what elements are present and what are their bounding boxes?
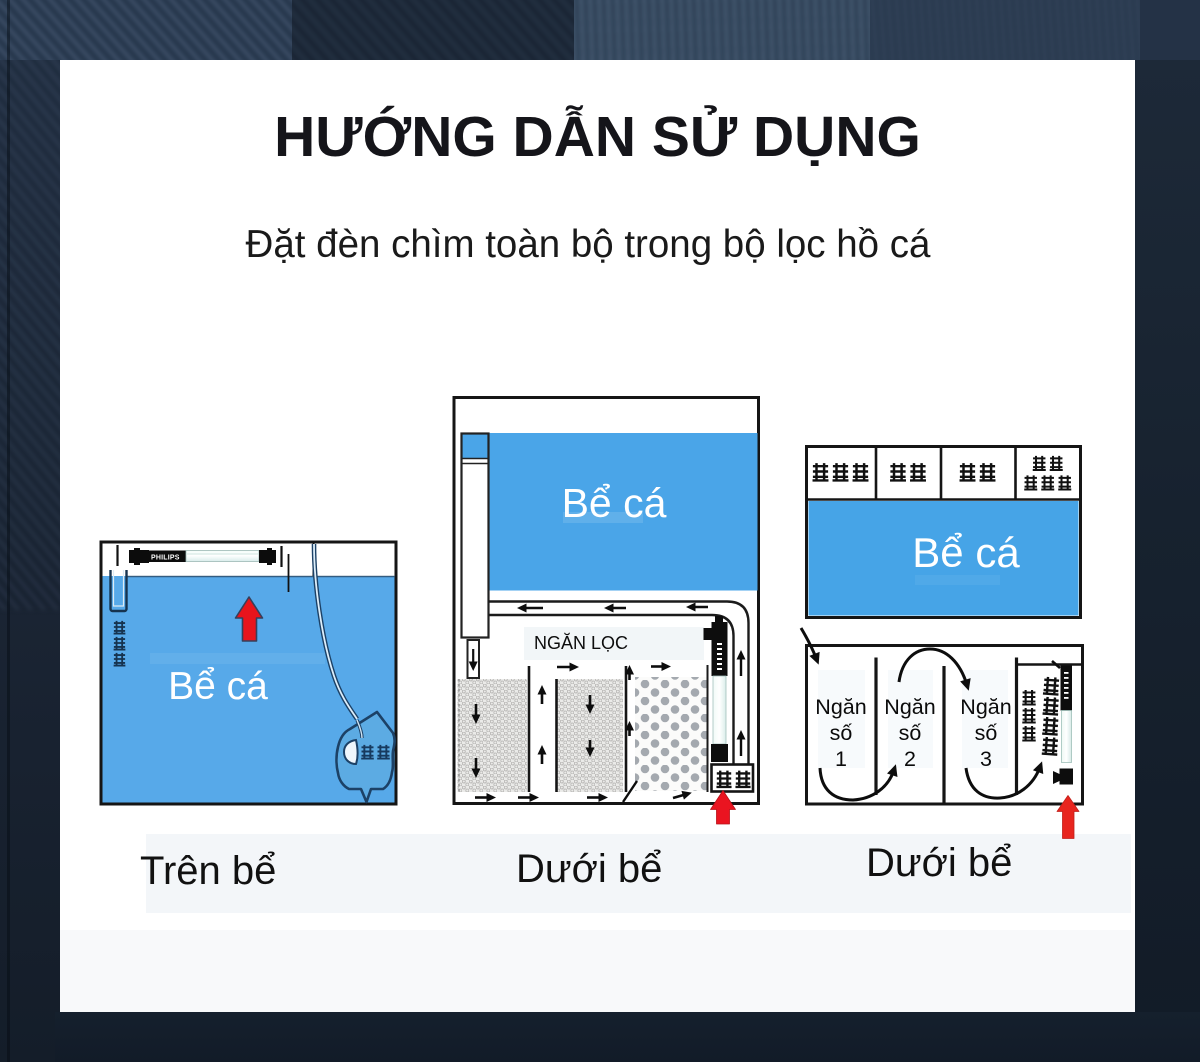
svg-text:Ngăn: Ngăn: [815, 695, 866, 719]
svg-text:số: số: [899, 721, 922, 745]
svg-text:3: 3: [980, 747, 992, 771]
svg-text:1: 1: [835, 747, 847, 771]
svg-text:số: số: [830, 721, 853, 745]
svg-text:Bể cá: Bể cá: [912, 529, 1020, 576]
svg-text:2: 2: [904, 747, 916, 771]
svg-text:Bể cá: Bể cá: [168, 665, 268, 708]
svg-text:PHILIPS: PHILIPS: [151, 555, 180, 562]
svg-text:Ngăn: Ngăn: [960, 695, 1011, 719]
svg-text:NGĂN LỌC: NGĂN LỌC: [534, 633, 628, 653]
svg-text:số: số: [975, 721, 998, 745]
svg-text:Bể cá: Bể cá: [562, 480, 667, 526]
svg-text:Ngăn: Ngăn: [884, 695, 935, 719]
